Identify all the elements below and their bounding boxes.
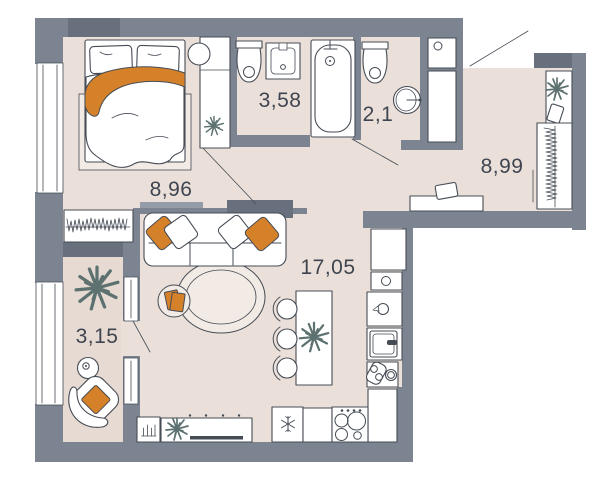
- bedroom-sliding-door: [140, 202, 203, 208]
- kitchen-counter: [303, 408, 332, 442]
- room-area-label-hallway: 8,99: [481, 155, 524, 178]
- toilet-icon: [236, 41, 262, 82]
- balcony-partition-window-2: [124, 358, 138, 404]
- stove: [332, 407, 368, 442]
- cabinet: [371, 272, 402, 290]
- mirror-icon: [188, 43, 210, 65]
- side-table: [78, 358, 99, 379]
- sofa: [144, 213, 286, 266]
- wall-entrance-dark-block: [534, 53, 572, 68]
- wall-left-mid: [35, 192, 63, 283]
- wall-left-lower: [35, 404, 63, 462]
- bench-item: [435, 182, 458, 199]
- tall-cabinet: [371, 229, 406, 270]
- wall-bathroom-bottom: [228, 135, 310, 147]
- wall-right: [572, 53, 586, 230]
- round-rug: [177, 261, 265, 333]
- floor-plan-page: 8,96 3,58 2,1 8,99 17,05 3,15: [0, 0, 604, 480]
- bar-stool-icon: [277, 358, 297, 378]
- tv: [190, 436, 243, 440]
- bar-stools: [273, 297, 297, 380]
- kitchen-sink-icon: [367, 328, 402, 360]
- wall-living-right-lower: [397, 387, 413, 443]
- fridge: [272, 407, 303, 442]
- sink-icon: [266, 43, 300, 79]
- counter-items: [365, 360, 398, 387]
- wall-bottom-balcony: [63, 442, 140, 462]
- pouf: [158, 285, 190, 317]
- wall-hallway-bottom: [363, 211, 586, 228]
- bedroom-window: [37, 63, 63, 193]
- bar-stool-icon: [277, 329, 297, 349]
- round-sink-icon: [394, 87, 422, 114]
- room-area-label-balcony: 3,15: [76, 325, 119, 348]
- room-area-label-bathroom: 3,58: [259, 89, 302, 112]
- balcony-partition-window: [124, 277, 138, 321]
- room-area-label-wc: 2,1: [363, 103, 394, 126]
- floor-plan-svg: 8,96 3,58 2,1 8,99 17,05 3,15: [0, 0, 604, 480]
- balcony-door-opening-floor: [121, 318, 140, 360]
- books-icon: [170, 292, 185, 312]
- toilet-icon: [362, 42, 388, 83]
- ventilation-shaft: [428, 38, 456, 142]
- room-area-label-living: 17,05: [300, 256, 355, 279]
- wall-left-upper: [35, 37, 63, 64]
- tv-stand: [161, 414, 252, 442]
- wall-bottom-main: [137, 442, 413, 462]
- lower-cabinet: [368, 389, 397, 442]
- balcony-window: [36, 282, 63, 405]
- wall-balcony-bedroom: [63, 242, 123, 257]
- kitchen-island: [296, 291, 332, 385]
- radiator-cabinet: [137, 417, 160, 442]
- bathtub-icon: [311, 40, 355, 137]
- hallway-wardrobe: [537, 123, 572, 209]
- wall-top-dark-block: [68, 18, 120, 37]
- bar-stool-icon: [277, 299, 297, 319]
- room-area-label-bedroom: 8,96: [150, 178, 193, 201]
